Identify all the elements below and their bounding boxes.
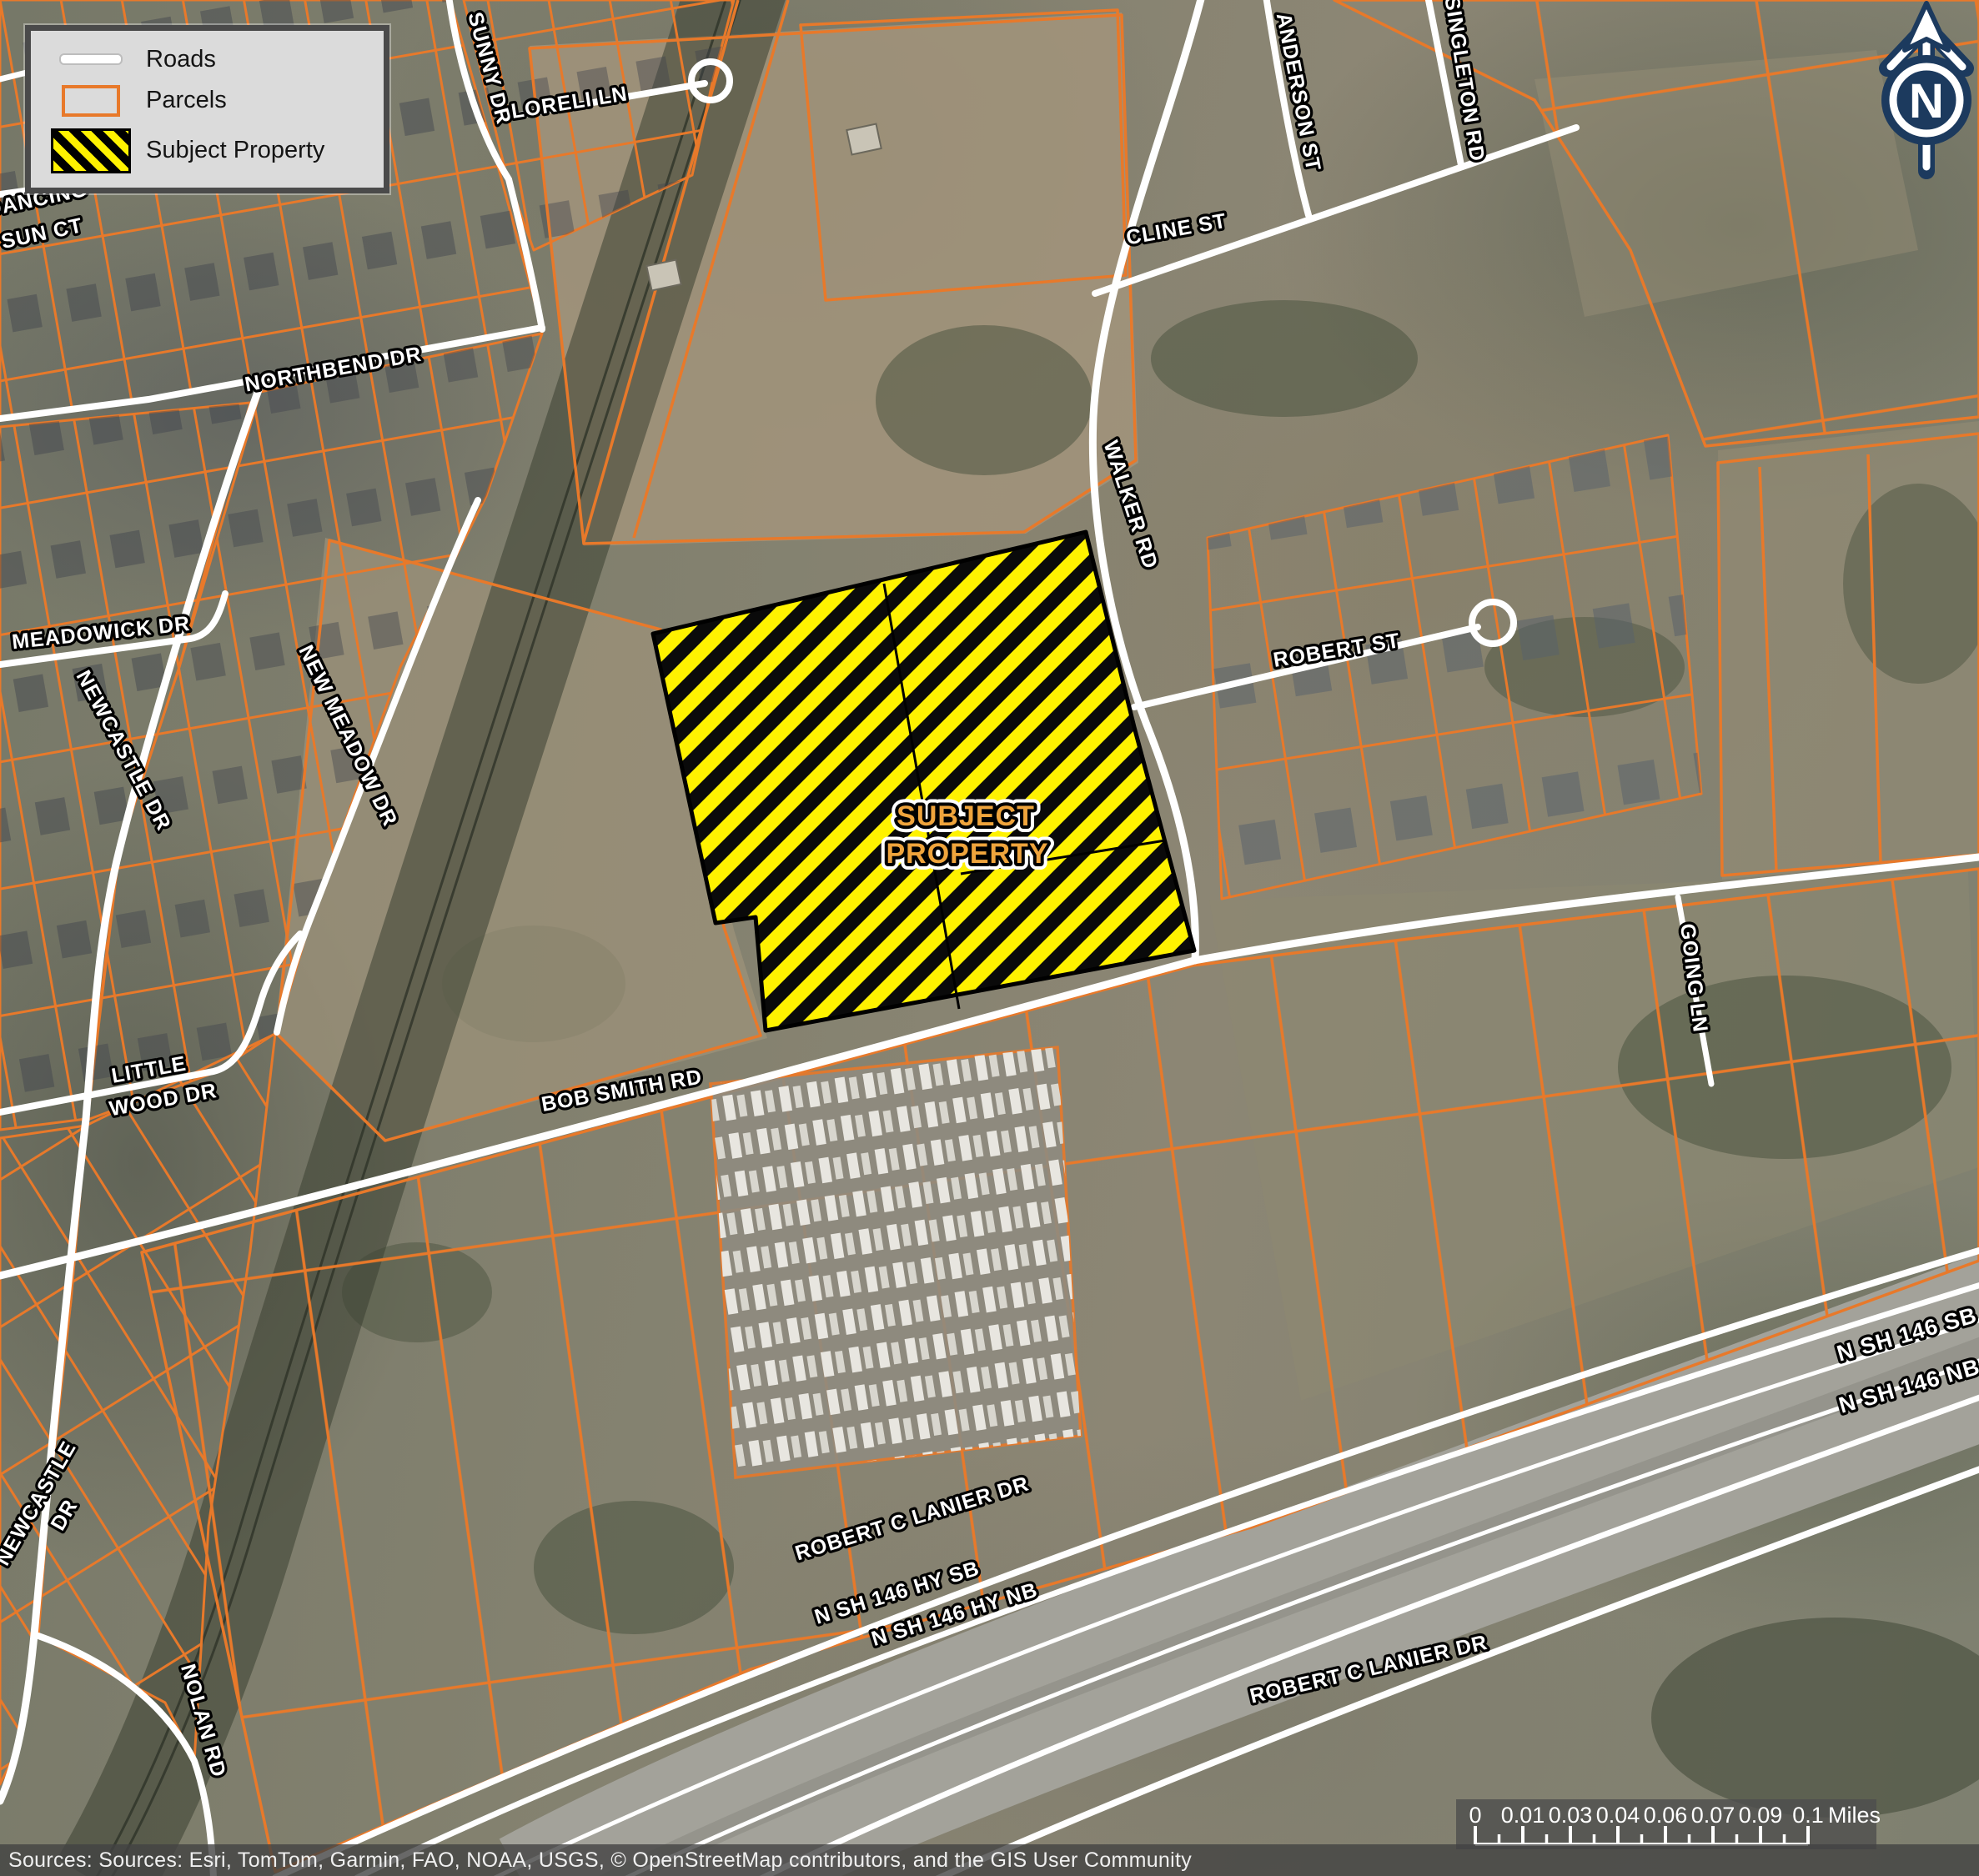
legend: Roads Parcels Subject Property — [25, 25, 389, 193]
map-export-page: SUBJECT PROPERTY SUBJECT PROPERTY DANCIN… — [0, 0, 1979, 1876]
road-line-swatch — [59, 53, 123, 65]
attribution-bar: Sources: Sources: Esri, TomTom, Garmin, … — [0, 1844, 1979, 1876]
scale-tick-label-2: 0.03 — [1549, 1803, 1593, 1828]
scale-tick-label-5: 0.07 — [1691, 1803, 1735, 1828]
subject-label-line-1: SUBJECT — [897, 800, 1035, 832]
north-arrow-letter: N — [1909, 74, 1944, 128]
scale-tick-label-0: 0 — [1469, 1803, 1481, 1828]
legend-item-subject-property: Subject Property — [49, 128, 384, 173]
attribution-text: Sources: Sources: Esri, TomTom, Garmin, … — [0, 1848, 1192, 1873]
trailer-park — [711, 1047, 1081, 1477]
subject-label-line-2: PROPERTY — [886, 838, 1048, 870]
parcel-outline-swatch — [62, 85, 120, 117]
legend-item-roads: Roads — [49, 46, 384, 73]
roads-swatch — [49, 53, 133, 65]
scale-tick-label-1: 0.01 — [1501, 1803, 1545, 1828]
scale-tick-label-3: 0.04 — [1596, 1803, 1640, 1828]
subject-property-swatch — [49, 128, 133, 173]
legend-label-subject-property: Subject Property — [146, 137, 324, 164]
scale-tick-label-4: 0.06 — [1644, 1803, 1688, 1828]
hatch-swatch — [51, 128, 131, 173]
scale-bar: 0 0.01 0.03 0.04 0.06 0.07 0.09 0.1 Mile… — [1456, 1799, 1881, 1849]
legend-label-parcels: Parcels — [146, 87, 227, 114]
road-label-cline-st: CLINE ST — [1124, 209, 1228, 250]
scale-tick-label-7: 0.1 — [1792, 1803, 1824, 1828]
map-canvas[interactable]: SUBJECT PROPERTY SUBJECT PROPERTY DANCIN… — [0, 0, 1979, 1876]
scale-unit-label: Miles — [1828, 1803, 1881, 1828]
legend-item-parcels: Parcels — [49, 85, 384, 117]
scale-tick-label-6: 0.09 — [1739, 1803, 1783, 1828]
road-cline-st — [1095, 128, 1576, 293]
legend-label-roads: Roads — [146, 46, 216, 73]
parcels-swatch — [49, 85, 133, 117]
